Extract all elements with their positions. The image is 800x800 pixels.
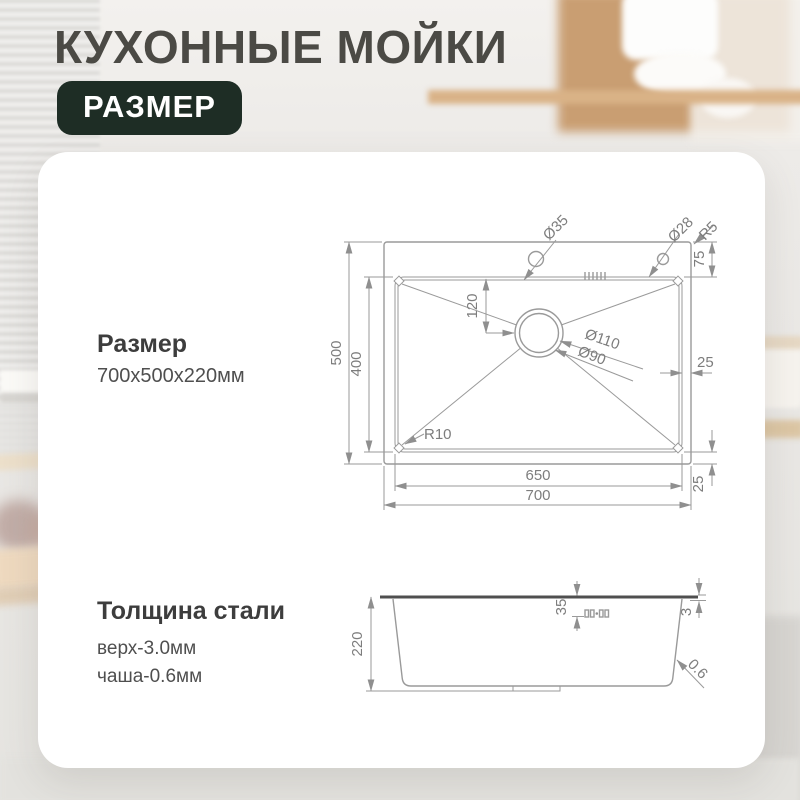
- size-heading: Размер: [97, 330, 187, 359]
- side-view-drawing: 220 35 3 0.6: [349, 578, 711, 691]
- bowl-outline-inner: [398, 280, 679, 449]
- corner-outer-label: R5: [696, 218, 722, 244]
- dim-rim-bottom-label: 25: [690, 476, 707, 493]
- dim-width-outer-label: 700: [525, 487, 550, 504]
- dim-rim-thickness-label: 3: [678, 608, 695, 616]
- dim-depth-label: 220: [349, 631, 366, 656]
- drain-fitting: [513, 686, 560, 691]
- corner-inner-label: R10: [424, 426, 452, 443]
- dim-height-inner-label: 400: [348, 351, 365, 376]
- wall-thickness-label: 0.6: [684, 656, 711, 683]
- thickness-heading: Толщина стали: [97, 597, 285, 626]
- size-value: 700x500x220мм: [97, 365, 245, 388]
- second-hole-label: Ø28: [665, 214, 697, 246]
- thickness-bowl-value: чаша-0.6мм: [97, 666, 202, 688]
- dim-rim-right-label: 25: [697, 354, 714, 371]
- thickness-top-value: верх-3.0мм: [97, 638, 196, 660]
- faucet-hole-label: Ø35: [540, 212, 572, 244]
- dim-drain-offset-label: 120: [464, 293, 481, 318]
- dim-height-outer-label: 500: [328, 340, 345, 365]
- size-badge: РАЗМЕР: [57, 81, 242, 135]
- dim-width-inner-label: 650: [525, 467, 550, 484]
- dim-rim-top-label: 75: [691, 251, 708, 268]
- top-view-drawing: 500 400 650 700 75 25: [328, 212, 721, 510]
- dim-overflow-label: 35: [553, 599, 570, 616]
- bowl-profile: [393, 599, 682, 686]
- page: КУХОННЫЕ МОЙКИ РАЗМЕР Размер 700x500x220…: [0, 0, 800, 800]
- page-title: КУХОННЫЕ МОЙКИ: [54, 20, 507, 75]
